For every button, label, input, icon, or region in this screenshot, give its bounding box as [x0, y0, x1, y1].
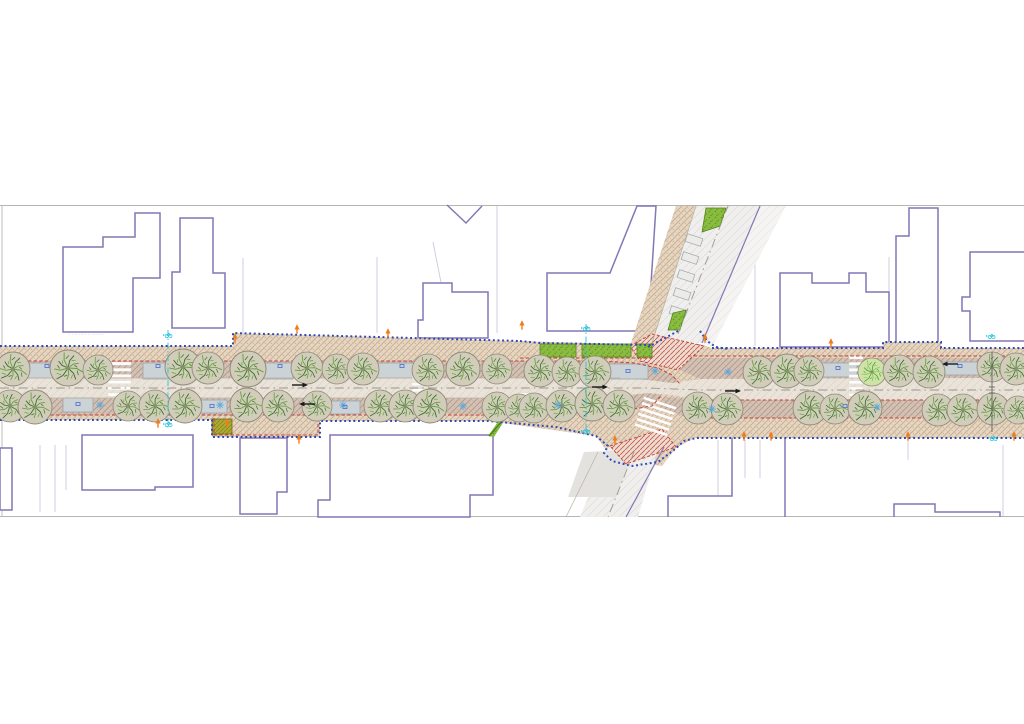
drain-snowflake-icon	[724, 368, 732, 376]
parking-bay	[609, 364, 648, 379]
tree-symbol	[412, 354, 444, 386]
building-outline	[780, 273, 889, 347]
tree-symbol	[83, 355, 113, 385]
building-outline	[318, 435, 493, 517]
plan-page: ·· ···· ····· ·· ············ ··········…	[0, 0, 1024, 724]
tree-symbol	[446, 352, 480, 386]
building-outline	[962, 252, 1024, 341]
drain-snowflake-icon	[651, 367, 659, 375]
tree-symbol	[482, 354, 512, 384]
tree-symbol	[230, 388, 264, 422]
orange-post-marker-icon	[519, 320, 524, 330]
building-outline	[447, 205, 482, 223]
tiny-annotation-text: ·····	[727, 356, 734, 360]
planting-square	[212, 419, 232, 434]
orange-post-marker-icon	[294, 324, 299, 334]
tree-symbol	[18, 390, 52, 424]
site-plan: ·· ···· ····· ·· ············ ··········…	[0, 0, 1024, 724]
drain-snowflake-icon	[216, 401, 224, 409]
tree-symbol	[347, 353, 379, 385]
building-outline	[668, 438, 732, 517]
tree-symbol	[794, 356, 824, 386]
building-outline	[240, 438, 287, 514]
tree-symbol	[546, 390, 578, 422]
bike-section-marker-icon	[163, 333, 172, 337]
tiny-annotation-text: ·· ···· ····· ·· ·········	[68, 333, 105, 337]
tree-symbol	[820, 394, 850, 424]
tree-symbol	[113, 391, 143, 421]
drain-snowflake-icon	[96, 401, 104, 409]
tree-symbol	[883, 355, 915, 387]
tree-symbol	[291, 352, 323, 384]
building-outline	[547, 206, 656, 331]
drain-snowflake-icon	[708, 405, 716, 413]
tree-symbol	[913, 356, 945, 388]
tree-symbol	[0, 352, 30, 386]
tree-symbol	[230, 351, 266, 387]
bike-section-marker-icon	[163, 422, 172, 426]
orange-post-marker-icon	[385, 328, 390, 338]
crosswalk-bar	[108, 381, 131, 384]
building-outline	[82, 435, 193, 490]
building-outline	[0, 448, 12, 510]
drain-snowflake-icon	[459, 402, 467, 410]
tree-symbol	[168, 389, 202, 423]
parking-bay	[63, 398, 93, 412]
tree-symbol	[50, 350, 86, 386]
hedge-planter	[582, 344, 631, 357]
tree-symbol	[524, 355, 556, 387]
tree-symbol	[603, 390, 635, 422]
building-outline	[418, 283, 488, 338]
bike-section-marker-icon	[986, 334, 995, 338]
building-outline	[63, 213, 160, 332]
tree-symbol	[682, 392, 714, 424]
tree-symbol	[262, 390, 294, 422]
drain-snowflake-icon	[873, 403, 881, 411]
tree-symbol	[192, 352, 224, 384]
building-outline	[172, 218, 225, 328]
tree-symbol	[858, 358, 886, 386]
building-outline	[896, 208, 938, 347]
drain-snowflake-icon	[554, 401, 562, 409]
tree-symbol	[519, 393, 549, 423]
tree-symbol	[579, 356, 611, 388]
tree-symbol	[947, 394, 979, 426]
tiny-annotation-text: ··· ·······	[368, 349, 384, 353]
hedge-planter	[637, 344, 652, 357]
tiny-annotation-text: ········	[641, 337, 652, 341]
crosswalk-bar	[849, 381, 863, 384]
tree-symbol	[552, 357, 582, 387]
tree-symbol	[413, 389, 447, 423]
building-outline	[894, 504, 1000, 517]
hedge-planter	[540, 344, 576, 357]
tree-symbol	[302, 391, 332, 421]
tree-symbol	[139, 390, 171, 422]
